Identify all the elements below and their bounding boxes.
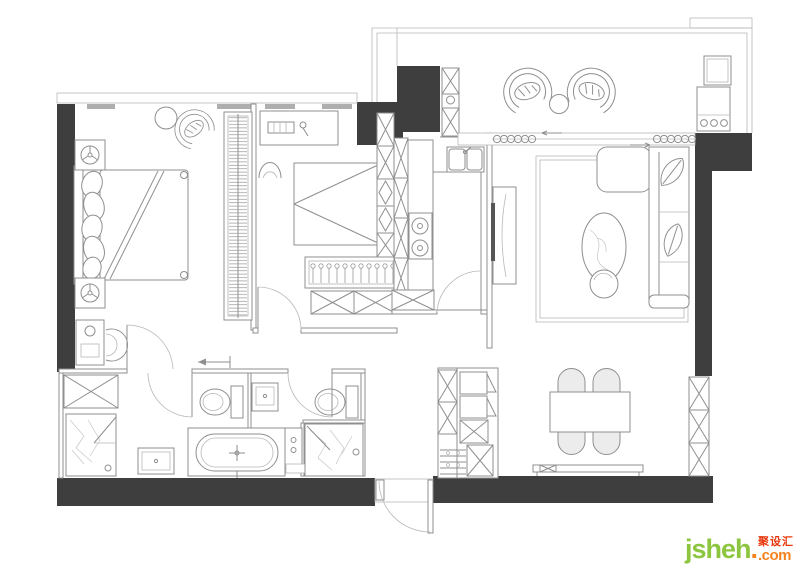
- jsheh-watermark: jsheh. 聚设汇 .com: [685, 536, 794, 563]
- window-sill-bar: [265, 104, 295, 109]
- round-side-table: [155, 107, 177, 129]
- shower-master: [66, 414, 116, 476]
- sofa-armrest: [649, 295, 689, 308]
- balcony-divider-cabinet: [442, 68, 459, 136]
- toilet-master: [200, 386, 243, 418]
- wall-center-top-a: [397, 66, 440, 132]
- logo-text-suffix: .com: [758, 548, 791, 563]
- arched-chair-inner: [263, 172, 277, 178]
- arched-chair: [259, 163, 281, 179]
- nightstand-bottom: [75, 278, 105, 308]
- bedroom2-south-wall: [301, 328, 397, 333]
- toilet-tank: [231, 386, 243, 418]
- toilet-bowl: [315, 389, 345, 415]
- wall-bottom-right: [433, 476, 713, 503]
- north-window-wall: [57, 93, 357, 109]
- kitchen-counter: [408, 140, 433, 300]
- balcony-storage-unit: [697, 87, 730, 131]
- logo-text-main: jsheh.: [685, 536, 757, 563]
- wall-right-top: [695, 133, 752, 171]
- dining-area: [533, 369, 709, 477]
- floor-plan-drawing: [0, 0, 800, 565]
- corridor: [127, 325, 230, 369]
- bedroom2-door-swing: [258, 287, 301, 330]
- toilet-tank: [346, 386, 358, 418]
- master-door-swing: [127, 325, 173, 369]
- bath-north-wall: [192, 369, 288, 373]
- wall-stub: [253, 328, 258, 333]
- living-room: [458, 131, 696, 348]
- floor-plan-canvas: jsheh. 聚设汇 .com: [0, 0, 800, 565]
- entry: [375, 368, 498, 533]
- closet-hangers: [309, 261, 393, 284]
- bath-north-wall: [59, 369, 127, 373]
- bath-partition: [248, 373, 251, 430]
- bedside-storage-column: [377, 113, 394, 257]
- bath-north-wall: [332, 369, 365, 373]
- toilet-bowl: [200, 389, 230, 415]
- bath-master-door-swing: [148, 373, 192, 417]
- desk: [260, 111, 338, 145]
- ottoman: [590, 270, 618, 298]
- toilet-guest: [315, 386, 358, 418]
- washing-machine: [704, 56, 731, 85]
- dressing-stool-inner: [106, 334, 117, 356]
- kitchen-island: [433, 172, 481, 310]
- bathtub: [188, 428, 285, 478]
- wall-left: [57, 104, 75, 372]
- wall-right: [695, 168, 712, 376]
- balcony-round-table: [550, 95, 569, 114]
- window-sill-bar: [322, 104, 352, 109]
- kitchen: [392, 137, 490, 314]
- window-wall: [57, 93, 357, 103]
- wall-bottom-left: [57, 478, 375, 506]
- lounge-chair: [167, 102, 218, 152]
- entry-door-leaf: [428, 480, 433, 533]
- bath-west-wall: [59, 373, 63, 478]
- master-bedroom: [74, 102, 256, 365]
- egg-chair-right: [564, 62, 622, 115]
- wall-tv: [491, 203, 495, 261]
- balcony-corner-step: [690, 18, 752, 28]
- slide-direction-arrow: [198, 359, 206, 366]
- dining-table: [550, 392, 630, 432]
- window-sill-bar: [87, 104, 115, 109]
- bedroom2-bed: [294, 163, 378, 245]
- bath-inner-wall: [303, 420, 365, 423]
- master-bed: [100, 170, 188, 280]
- bench: [533, 465, 643, 472]
- kitchen-south-wall: [392, 310, 437, 314]
- egg-chair-left: [497, 62, 555, 115]
- nightstand-top: [75, 140, 105, 170]
- sofa-chaise: [597, 147, 651, 192]
- dressing-table: [76, 320, 104, 365]
- bathrooms: [59, 369, 365, 478]
- window-sill-bar: [217, 104, 252, 109]
